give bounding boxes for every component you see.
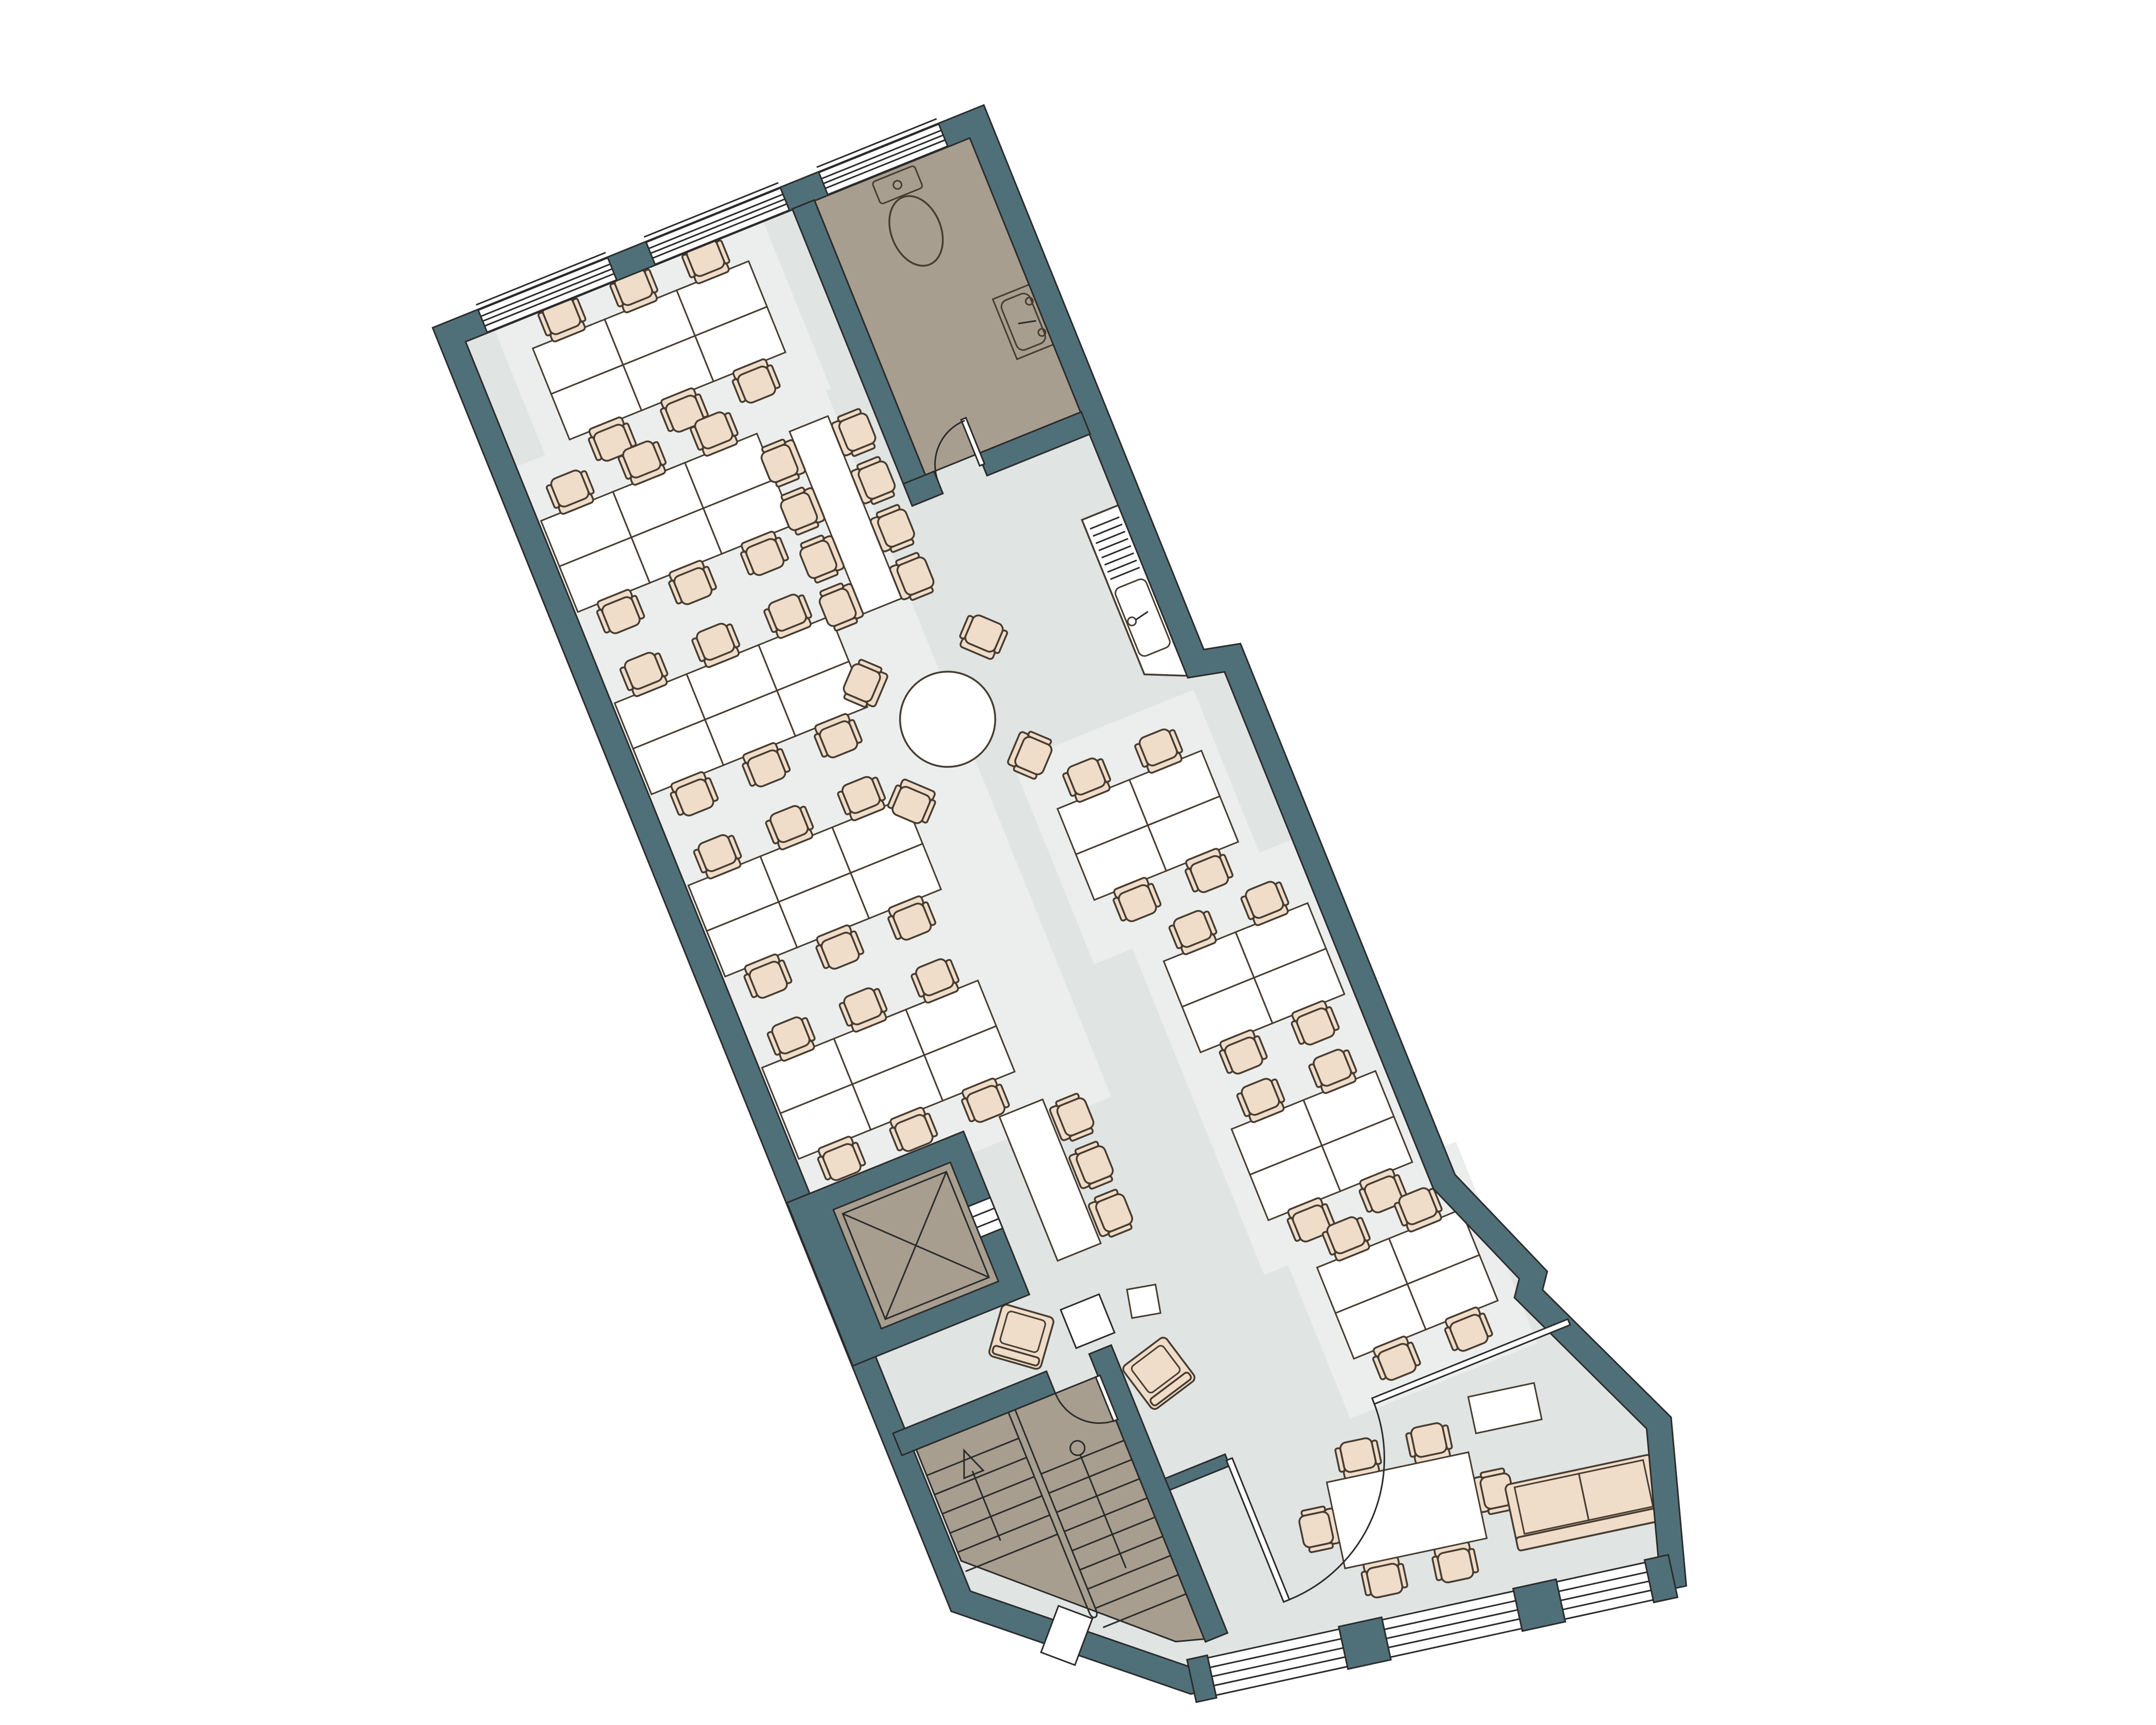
floor-plan-page: [0, 0, 2156, 1725]
side-table-top: [1127, 1285, 1161, 1318]
floor-plan: [0, 0, 2156, 1725]
chair-seat: [1366, 1563, 1404, 1599]
building: [432, 51, 1722, 1725]
chair-seat: [1339, 1437, 1377, 1474]
chair-seat: [1410, 1422, 1448, 1458]
side-table: [1127, 1285, 1161, 1318]
chair-seat: [1298, 1511, 1334, 1549]
chair-seat: [1437, 1548, 1475, 1584]
